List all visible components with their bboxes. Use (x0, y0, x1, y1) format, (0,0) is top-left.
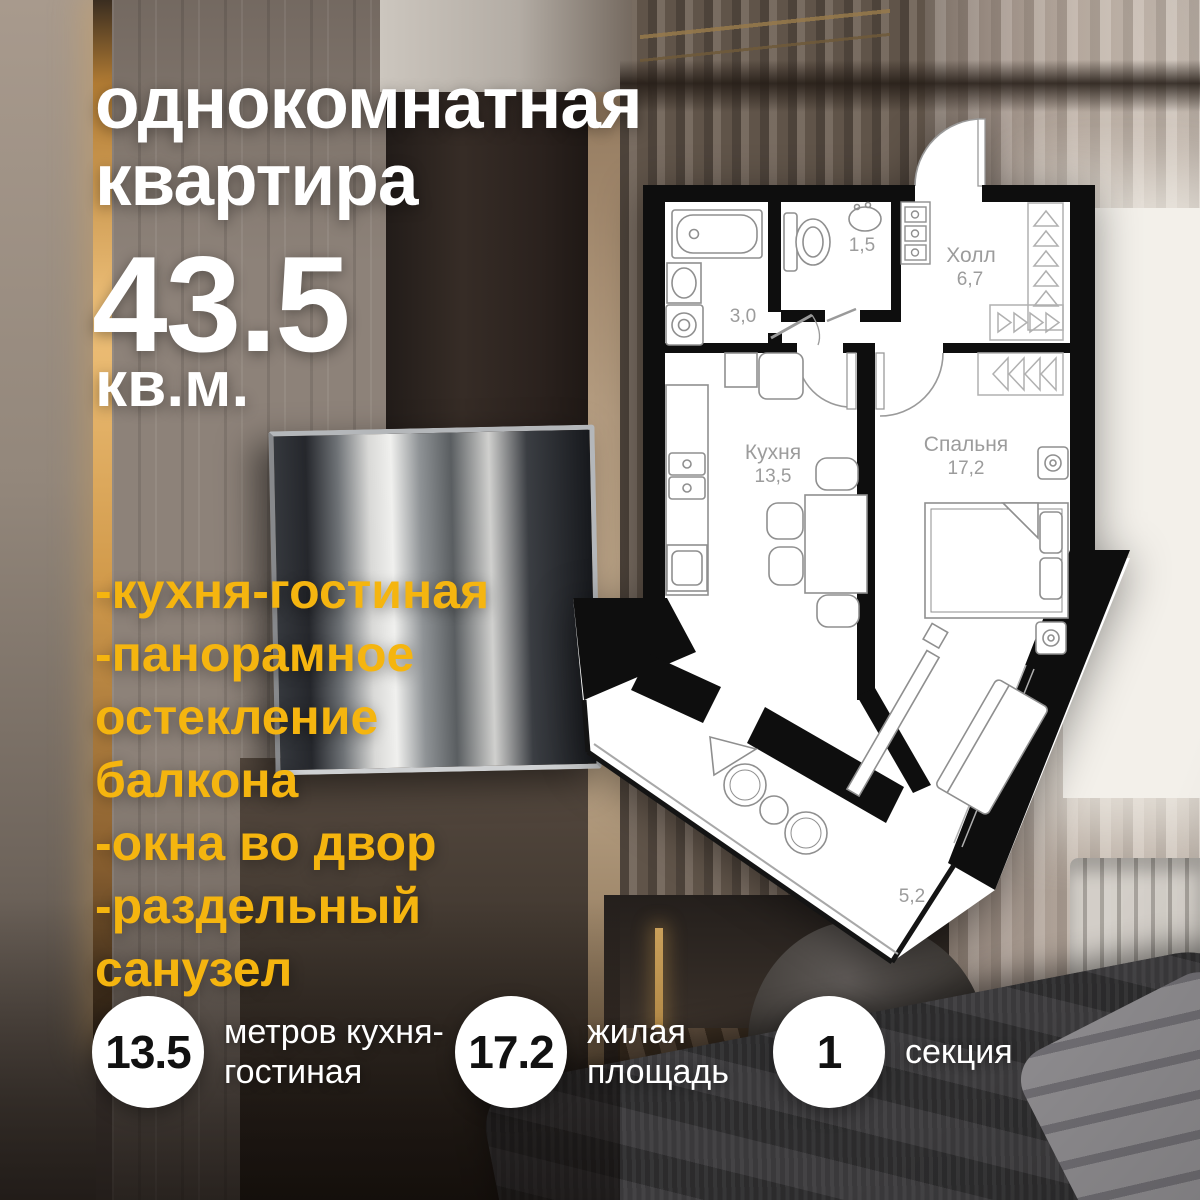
bed-icon (925, 503, 1068, 618)
bathroom-sink-icon (667, 263, 701, 303)
bathtub-icon (672, 210, 762, 258)
stat-section: 1 секция (773, 996, 1013, 1108)
title-line1: однокомнатная (95, 66, 642, 143)
room-area-wc: 1,5 (849, 235, 875, 256)
stat-living-area: 17.2 жилая площадь (455, 996, 737, 1108)
stat-badge: 13.5 (92, 996, 204, 1108)
feature-item: -окна во двор (95, 812, 575, 875)
area-unit: кв.м. (95, 352, 249, 416)
balcony-chair-icon (724, 764, 766, 806)
room-area-bathroom: 3,0 (730, 306, 756, 327)
room-label-kitchen: Кухня (745, 441, 801, 464)
stat-badge: 1 (773, 996, 885, 1108)
stat-kitchen-size: 13.5 метров кухня-гостиная (92, 996, 484, 1108)
room-label-bedroom: Спальня (924, 433, 1008, 456)
feature-list: -кухня-гостиная -панорамное остекление б… (95, 560, 575, 1001)
room-area-balcony: 5,2 (899, 886, 925, 907)
chair-icon (817, 595, 859, 627)
washing-machine-icon (666, 305, 703, 345)
room-label-hall: Холл (946, 244, 996, 267)
stat-label: секция (905, 1032, 1013, 1072)
fridge-icon (759, 353, 803, 399)
chair-icon (769, 547, 803, 585)
speaker-icon (1036, 622, 1066, 654)
feature-item: -кухня-гостиная (95, 560, 575, 623)
chair-icon (767, 503, 803, 539)
entrance-door-icon (915, 119, 985, 186)
stat-badge: 17.2 (455, 996, 567, 1108)
real-estate-poster: Холл 6,7 1,5 3,0 Кухня 13,5 Спальня 17,2… (0, 0, 1200, 1200)
cabinet-icon (725, 353, 757, 387)
speaker-icon (1038, 447, 1068, 479)
feature-item: -панорамное остекление балкона (95, 623, 575, 812)
utility-shaft-icons (901, 202, 930, 264)
dining-table-icon (805, 495, 867, 593)
balcony-table-icon (760, 796, 788, 824)
chair-icon (816, 458, 858, 490)
title-line2: квартира (95, 143, 642, 220)
room-area-kitchen: 13,5 (755, 466, 792, 487)
balcony-chair-icon (785, 812, 827, 854)
room-area-hall: 6,7 (957, 269, 983, 290)
stove-icon (667, 545, 707, 591)
room-area-bedroom: 17,2 (948, 458, 985, 479)
stat-label: жилая площадь (587, 1012, 737, 1092)
feature-item: -раздельный санузел (95, 875, 575, 1001)
page-title: однокомнатная квартира (95, 66, 642, 219)
stat-label: метров кухня-гостиная (224, 1012, 484, 1092)
floor-plan: Холл 6,7 1,5 3,0 Кухня 13,5 Спальня 17,2… (560, 95, 1160, 975)
